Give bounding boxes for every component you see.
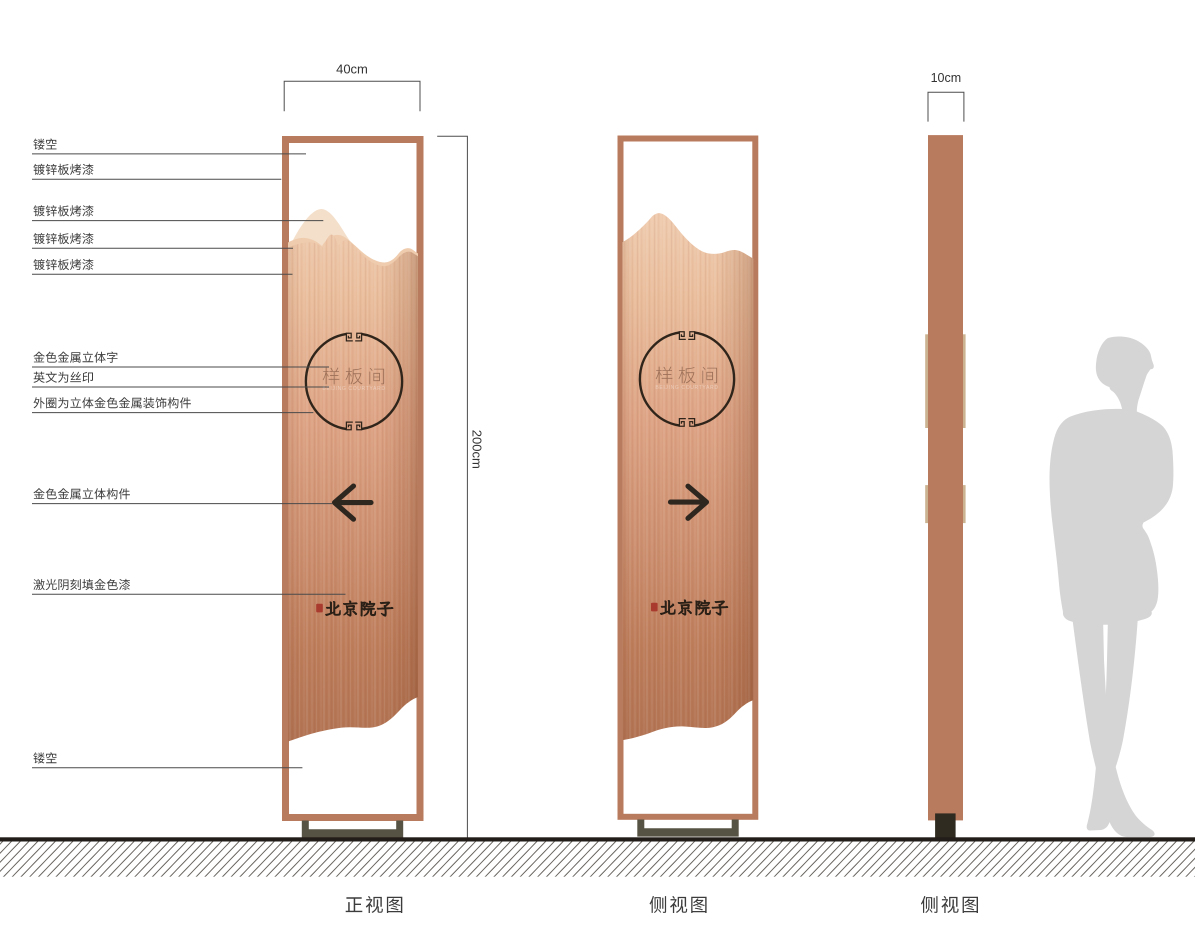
- svg-text:BEIJING COURTYARD: BEIJING COURTYARD: [655, 385, 718, 391]
- svg-text:BEIJING COURTYARD: BEIJING COURTYARD: [322, 386, 385, 392]
- svg-text:10cm: 10cm: [931, 71, 962, 85]
- svg-text:40cm: 40cm: [336, 62, 368, 77]
- svg-text:200cm: 200cm: [469, 430, 484, 469]
